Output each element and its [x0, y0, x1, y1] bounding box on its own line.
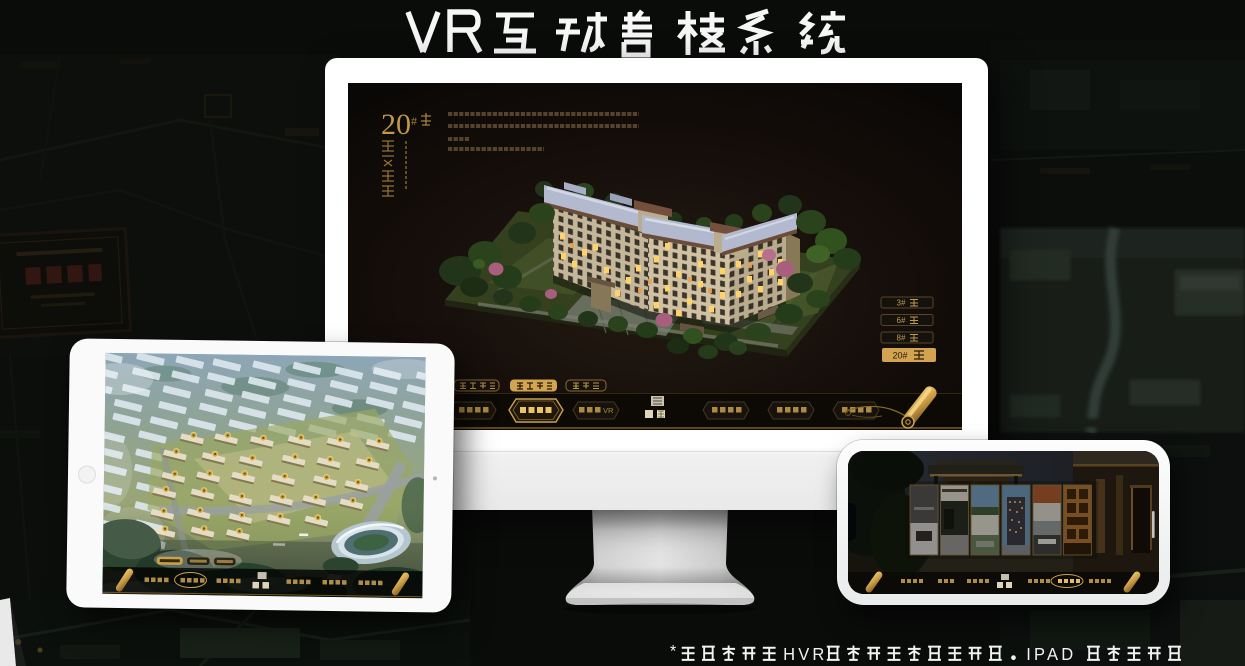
svg-text:20#: 20#	[892, 351, 907, 361]
svg-text:HVR: HVR	[783, 645, 827, 664]
svg-text:3#: 3#	[897, 299, 906, 308]
svg-text:VR: VR	[603, 406, 614, 415]
svg-text:#: #	[411, 114, 417, 128]
svg-text:IPAD: IPAD	[1026, 645, 1076, 664]
svg-text:8#: 8#	[897, 334, 906, 343]
svg-text:6#: 6#	[897, 316, 906, 325]
svg-text:*: *	[670, 642, 677, 660]
svg-text:20: 20	[381, 108, 411, 141]
